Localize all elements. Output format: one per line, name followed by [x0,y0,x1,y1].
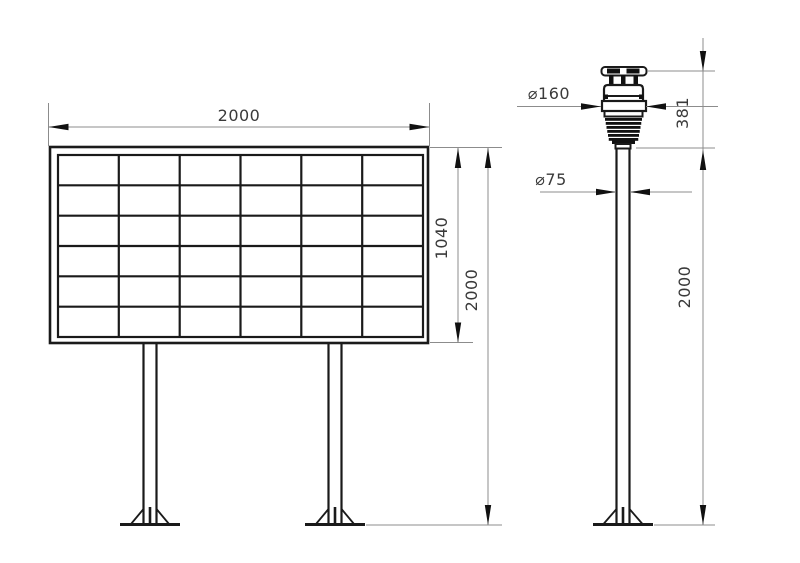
dim-pole-diameter: ⌀75 [535,170,692,195]
dim-board-width: 2000 [49,103,430,146]
dim-label-board-width: 2000 [218,106,261,125]
sensor-upper-body [604,85,643,101]
sensor-body-nub [639,95,644,100]
dim-label-sensor-height: 381 [673,97,692,129]
drawing-sheet: 2000 1040 2000 [0,0,800,563]
dim-label-sensor-diameter: ⌀160 [528,84,570,103]
display-board-view: 2000 1040 2000 [49,103,503,525]
arrowhead-down [700,505,706,525]
sensor-sub-band [605,111,643,117]
dim-label-pole-height: 2000 [675,266,694,309]
arrowhead-left [646,103,666,109]
arrowhead-right [596,189,616,195]
arrowhead-up [485,148,491,168]
sensor-cap-block [607,69,620,74]
board-legs [144,343,342,524]
sensor-neck [616,144,631,149]
arrowhead-down [485,505,491,525]
sensor-cap-block [627,69,640,74]
arrowhead-left [630,189,650,195]
arrowhead-right [410,124,430,130]
arrowhead-left [49,124,69,130]
gusset-lines [131,507,354,524]
sensor-rib-shield [605,118,642,141]
arrowhead-down [700,51,706,71]
dim-label-board-total-height: 2000 [462,269,481,312]
weather-station-view: ⌀160 ⌀75 381 2000 [517,38,718,525]
technical-drawing-canvas: 2000 1040 2000 [0,0,800,563]
sensor-head [602,67,647,149]
pole-base [593,507,653,525]
panel-grid [58,155,423,337]
arrowhead-down [455,323,461,343]
dim-sensor-and-pole-height: 381 2000 [636,38,715,525]
dim-label-panel-height: 1040 [432,217,451,260]
sensor-body-nub [604,95,609,100]
arrowhead-up [700,150,706,170]
dim-label-pole-diameter: ⌀75 [535,170,567,189]
pole [617,149,630,524]
arrowhead-up [455,148,461,168]
sensor-mid-band [602,101,646,111]
dim-board-panel-height: 1040 [430,148,502,343]
arrowhead-right [581,103,601,109]
